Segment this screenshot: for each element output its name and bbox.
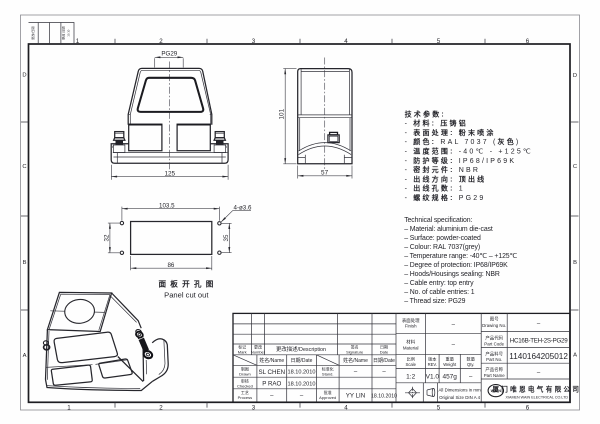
svg-text:6: 6 (526, 38, 530, 45)
svg-text:材料: 材料 (406, 339, 415, 346)
svg-text:REV.: REV. (428, 362, 437, 367)
svg-text:姓名/Name: 姓名/Name (259, 357, 284, 364)
svg-text:Process: Process (238, 395, 252, 400)
svg-text:V1.0: V1.0 (426, 373, 440, 380)
svg-text:Number: Number (251, 349, 266, 354)
svg-text:A: A (23, 353, 27, 359)
svg-text:3: 3 (252, 405, 256, 412)
svg-text:– No. of cable entries: 1: – No. of cable entries: 1 (404, 289, 475, 296)
svg-text:批准: 批准 (324, 389, 332, 395)
svg-text:更改/日期: 更改/日期 (30, 27, 35, 40)
svg-text:制图: 制图 (241, 366, 249, 372)
svg-text:Stand.: Stand. (322, 372, 334, 377)
svg-text:3: 3 (252, 38, 256, 45)
svg-text:– Hoods/Housings sealing: NBR: – Hoods/Housings sealing: NBR (404, 271, 500, 278)
svg-text:5: 5 (437, 405, 441, 412)
svg-text:技术参数:: 技术参数: (405, 109, 446, 118)
svg-text:10.10: 10.10 (66, 29, 70, 36)
svg-text:5: 5 (437, 38, 441, 45)
svg-text:A: A (573, 353, 577, 359)
svg-text:C: C (573, 164, 577, 170)
svg-text:125: 125 (164, 170, 175, 177)
svg-text:C: C (22, 164, 26, 170)
svg-text:– Colour: RAL 7037(grey): – Colour: RAL 7037(grey) (404, 244, 480, 251)
svg-text:86: 86 (167, 262, 174, 269)
svg-text:101: 101 (279, 108, 286, 119)
svg-text:Original Size DIN A 4: Original Size DIN A 4 (439, 395, 481, 400)
svg-text:日期/Date: 日期/Date (373, 358, 395, 364)
svg-text:All Dimensions in mm: All Dimensions in mm (438, 387, 481, 392)
svg-text:B: B (23, 260, 27, 266)
svg-text:Weight: Weight (443, 362, 457, 367)
svg-text:35: 35 (223, 234, 230, 241)
svg-text:- 表面处理: 粉末喷涂: - 表面处理: 粉末喷涂 (405, 128, 496, 137)
svg-text:Approved: Approved (319, 395, 336, 400)
svg-text:日期/Date: 日期/Date (291, 358, 313, 364)
svg-text:– Degree of protection: IP68/I: – Degree of protection: IP68/IP69K (404, 262, 508, 269)
svg-text:审核: 审核 (241, 377, 249, 383)
svg-text:– Thread size: PG29: – Thread size: PG29 (404, 298, 465, 305)
svg-text:姓名/Name: 姓名/Name (343, 357, 368, 364)
svg-text:2: 2 (159, 405, 163, 412)
svg-text:457g: 457g (442, 373, 457, 380)
svg-text:P RAO: P RAO (262, 381, 281, 388)
svg-text:D: D (22, 73, 26, 79)
svg-text:Technical specification:: Technical specification: (404, 217, 472, 224)
svg-text:57: 57 (321, 170, 329, 177)
svg-text:1: 1 (67, 405, 71, 412)
svg-text:1:2: 1:2 (406, 373, 415, 380)
svg-text:4: 4 (344, 405, 348, 412)
svg-text:- 温度范围: -40℃ - +125℃: - 温度范围: -40℃ - +125℃ (405, 147, 533, 156)
svg-text:18.10.2010: 18.10.2010 (288, 370, 316, 376)
svg-text:HC16B-TEH-2S-PG29: HC16B-TEH-2S-PG29 (510, 338, 568, 345)
svg-text:Finish: Finish (405, 324, 417, 329)
svg-text:Drawn: Drawn (239, 372, 251, 377)
svg-text:4: 4 (344, 38, 348, 45)
svg-text:- 出线方向: 顶出线: - 出线方向: 顶出线 (405, 174, 487, 183)
svg-text:Date: Date (380, 349, 389, 354)
svg-text:32: 32 (104, 234, 111, 241)
svg-text:18.10.2010: 18.10.2010 (371, 393, 397, 399)
svg-text:Part No.: Part No. (486, 357, 502, 362)
svg-text:Checked: Checked (237, 384, 253, 389)
svg-text:1: 1 (76, 38, 80, 45)
svg-text:- 密封元件: NBR: - 密封元件: NBR (405, 165, 481, 174)
svg-text:SL CHEN: SL CHEN (259, 369, 286, 376)
svg-text:– Material: aluminium die-cast: – Material: aluminium die-cast (404, 226, 493, 233)
svg-text:6: 6 (526, 405, 530, 412)
svg-text:- 材料: 压铸铝: - 材料: 压铸铝 (405, 119, 468, 128)
svg-text:18.10.2010: 18.10.2010 (288, 381, 316, 387)
svg-text:– Temperature range: -40℃ – +: – Temperature range: -40℃ – +125℃ (404, 253, 517, 260)
svg-text:Drawing No.: Drawing No. (482, 323, 506, 328)
svg-text:103.5: 103.5 (159, 202, 175, 209)
svg-text:更改 日期: 更改 日期 (60, 27, 65, 40)
svg-text:- 防护等级: IP68/IP69K: - 防护等级: IP68/IP69K (405, 156, 517, 165)
svg-text:Part Code: Part Code (484, 341, 504, 346)
svg-text:Qty.: Qty. (467, 362, 474, 367)
svg-text:- 螺纹规格: PG29: - 螺纹规格: PG29 (405, 193, 486, 202)
svg-text:B: B (573, 260, 577, 266)
svg-text:1140164205012: 1140164205012 (509, 352, 568, 361)
svg-text:- 颜色: RAL 7037 (灰色): - 颜色: RAL 7037 (灰色) (405, 137, 521, 146)
svg-text:标准化: 标准化 (322, 366, 334, 372)
svg-text:面板开孔图: 面板开孔图 (159, 279, 218, 289)
svg-text:Material: Material (403, 346, 419, 351)
svg-text:PG29: PG29 (161, 51, 177, 58)
svg-text:YY LIN: YY LIN (346, 393, 366, 400)
svg-text:– Surface: powder-coated: – Surface: powder-coated (404, 235, 481, 242)
svg-text:更改描述/Description: 更改描述/Description (276, 345, 326, 353)
svg-text:XIAMEN WAIN ELECTRICAL CO.LTD: XIAMEN WAIN ELECTRICAL CO.LTD (506, 395, 569, 399)
svg-text:- 出线孔数: 1: - 出线孔数: 1 (405, 184, 465, 193)
svg-text:Mark: Mark (238, 349, 247, 354)
svg-text:Scale: Scale (405, 362, 416, 367)
svg-text:D: D (573, 73, 577, 79)
svg-text:– Cable entry: top entry: – Cable entry: top entry (404, 280, 474, 287)
svg-text:Part Name: Part Name (484, 373, 506, 378)
svg-text:厦门唯恩电气有限公司: 厦门唯恩电气有限公司 (491, 384, 581, 393)
svg-text:2: 2 (159, 38, 163, 45)
svg-text:Signature: Signature (346, 349, 364, 354)
svg-text:Panel cut out: Panel cut out (164, 290, 209, 299)
